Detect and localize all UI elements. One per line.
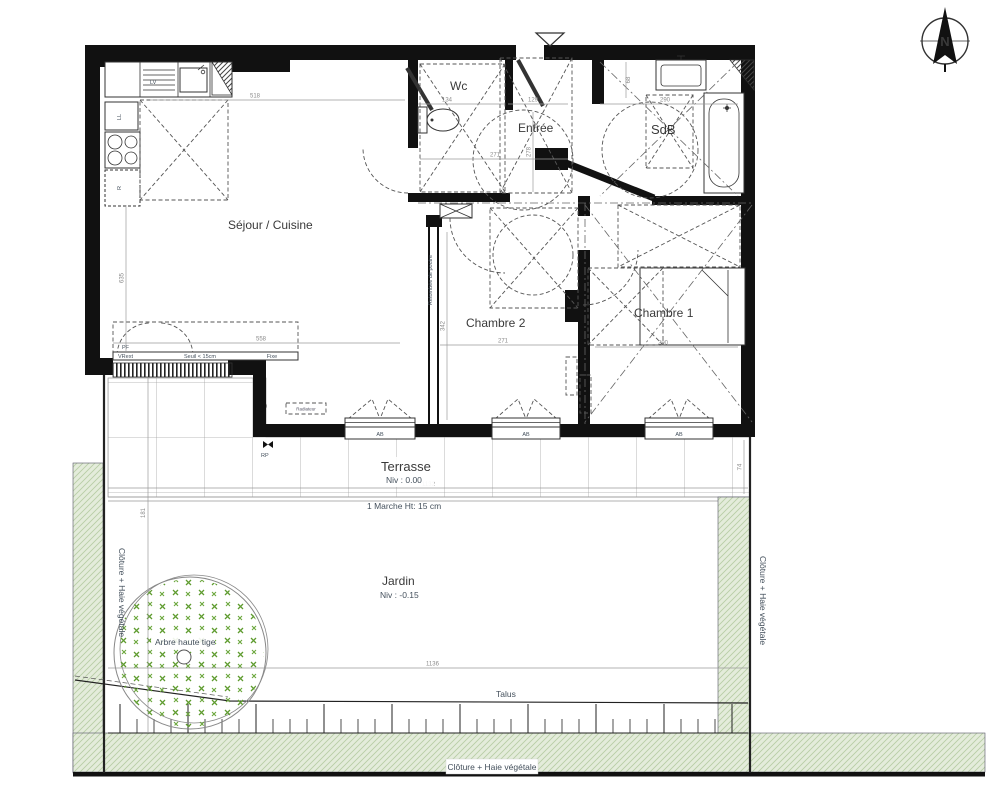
toilet-tank bbox=[418, 107, 427, 133]
hedge-right bbox=[718, 497, 750, 773]
window-label: AB bbox=[675, 432, 683, 438]
dim-entry-depth: 278 bbox=[527, 146, 533, 157]
room-label-sdb: SdB bbox=[651, 122, 676, 137]
dim-fence-offset: 74 bbox=[738, 463, 744, 470]
room-label-jardin: Jardin bbox=[382, 574, 415, 588]
bay-threshold-hatch bbox=[113, 363, 232, 377]
dim-entry-width: 129 bbox=[528, 98, 539, 104]
dim-chambre1-width: 290 bbox=[658, 341, 669, 347]
terrasse-level: Niv : 0.00 bbox=[386, 475, 422, 485]
fence-bottom-label-group: Clôture + Haie végétale bbox=[446, 759, 538, 774]
dim-sejour-width: 558 bbox=[256, 337, 267, 343]
fixed-panel-label: Fixe bbox=[267, 354, 277, 360]
dim-hall-width: 271 bbox=[490, 153, 501, 159]
dim-jardin-width: 1136 bbox=[426, 662, 440, 668]
dim-kitchen-width: 518 bbox=[250, 94, 261, 100]
room-label-entree: Entrée bbox=[518, 121, 554, 135]
north-compass: N bbox=[920, 7, 970, 72]
fence-bottom-label: Clôture + Haie végétale bbox=[447, 762, 536, 772]
dishwasher-label: LV bbox=[150, 80, 157, 86]
window-label: AB bbox=[522, 432, 530, 438]
fence-right-label: Clôture + Haie végétale bbox=[758, 556, 768, 645]
window-sejour: AB bbox=[345, 399, 415, 439]
tree-trunk bbox=[177, 650, 191, 664]
threshold-label: Seuil < 15cm bbox=[184, 354, 216, 360]
dim-wc-width: 134 bbox=[442, 98, 453, 104]
fridge-label: R bbox=[117, 186, 123, 190]
window-chambre2: AB bbox=[492, 399, 560, 439]
washbasin bbox=[656, 60, 706, 90]
wc-fixtures bbox=[418, 107, 459, 133]
hob bbox=[105, 132, 140, 168]
step-annotation: 1 Marche Ht: 15 cm bbox=[367, 501, 441, 511]
dim-terrasse-depth: 181 bbox=[141, 507, 147, 518]
dim-kitchen-depth: 635 bbox=[120, 272, 126, 283]
tree: Arbre haute tige bbox=[114, 575, 268, 729]
floor-plan-page: AB AB AB PF VRext Seuil < 15cm Fixe bbox=[0, 0, 986, 800]
tree-label: Arbre haute tige bbox=[155, 637, 216, 647]
dim-sdb-niche: 68 bbox=[626, 76, 632, 83]
bathtub bbox=[704, 93, 744, 193]
washing-machine-label: LL bbox=[117, 114, 123, 120]
window-chambre1: AB bbox=[645, 399, 713, 439]
dim-chambre2-depth: 342 bbox=[441, 320, 447, 331]
radiator-label: Radiateur bbox=[296, 407, 316, 412]
floor-plan-drawing: AB AB AB PF VRext Seuil < 15cm Fixe bbox=[0, 0, 986, 800]
kitchen-sink bbox=[180, 68, 207, 92]
talus-label: Talus bbox=[496, 689, 516, 699]
hedge-left bbox=[73, 463, 103, 773]
door-label-vr: VRext bbox=[118, 354, 133, 360]
terrasse-labels: Terrasse Niv : 0.00 bbox=[376, 457, 434, 487]
rp-label: RP bbox=[261, 453, 269, 459]
fence-left-label: Clôture + Haie végétale bbox=[117, 548, 127, 637]
beam-label: Retombée de poutre bbox=[428, 255, 434, 305]
compass-label: N bbox=[940, 34, 949, 49]
dim-chambre2-width: 271 bbox=[498, 339, 509, 345]
drain-marker bbox=[256, 401, 267, 412]
jardin-level: Niv : -0.15 bbox=[380, 590, 419, 600]
entrance-marker-icon bbox=[536, 33, 564, 46]
dim-sdb-width: 290 bbox=[660, 98, 671, 104]
room-label-terrasse: Terrasse bbox=[381, 459, 431, 474]
window-label: AB bbox=[376, 432, 384, 438]
jardin-labels: Jardin Niv : -0.15 bbox=[380, 574, 419, 600]
room-label-wc: Wc bbox=[450, 79, 467, 93]
room-label-chambre2: Chambre 2 bbox=[466, 316, 526, 330]
kitchen-fixtures bbox=[105, 62, 232, 206]
room-label-chambre1: Chambre 1 bbox=[634, 306, 694, 320]
bay-door-sejour: PF VRext Seuil < 15cm Fixe bbox=[113, 322, 298, 377]
room-label-sejour: Séjour / Cuisine bbox=[228, 218, 313, 232]
